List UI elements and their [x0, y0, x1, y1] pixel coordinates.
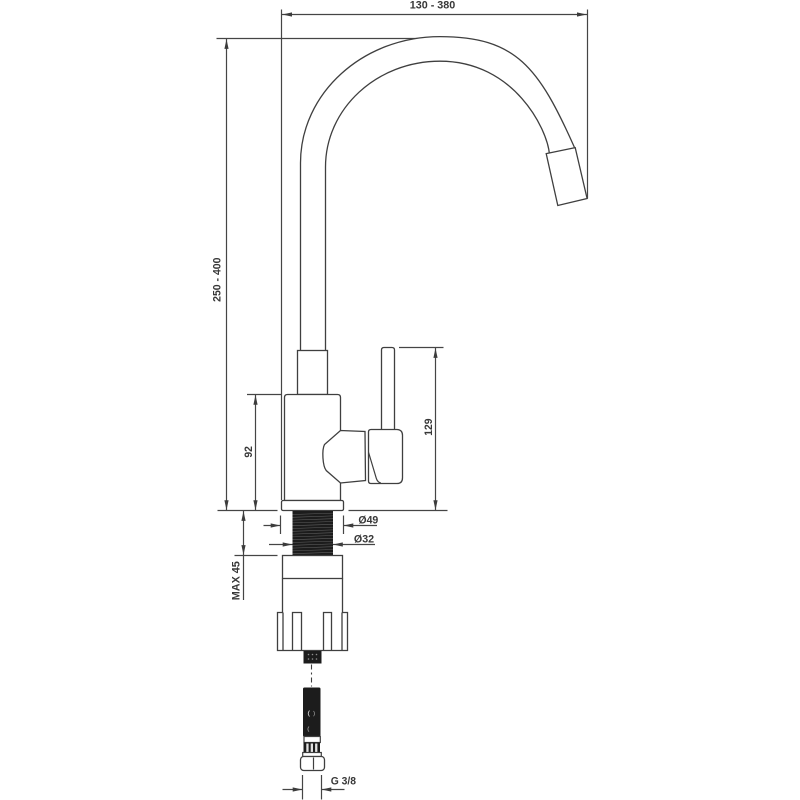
svg-text:250 - 400: 250 - 400 [211, 258, 223, 302]
svg-text:130 - 380: 130 - 380 [410, 0, 456, 11]
svg-text:92: 92 [243, 446, 255, 458]
svg-text:Ø32: Ø32 [354, 533, 374, 545]
svg-text:129: 129 [423, 419, 435, 436]
svg-text:G 3/8: G 3/8 [331, 776, 356, 788]
svg-text:Ø49: Ø49 [358, 514, 378, 526]
svg-text:MAX 45: MAX 45 [231, 561, 243, 600]
